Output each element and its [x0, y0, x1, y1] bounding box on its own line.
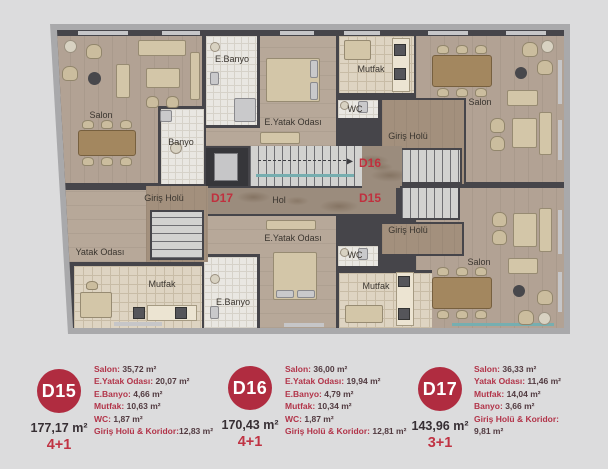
sink — [210, 42, 220, 52]
label-giris-d17: Giriş Holü — [144, 193, 184, 203]
sofa — [138, 40, 186, 56]
unit-badge-d15: D15 — [37, 369, 81, 413]
oven — [398, 308, 410, 320]
armchair — [518, 310, 534, 325]
stair-handrail — [256, 174, 354, 177]
label-mutfak-d15: Mutfak — [362, 281, 389, 291]
chair — [82, 157, 94, 166]
kitchen-counter — [147, 305, 197, 321]
armchair — [490, 118, 505, 133]
kitchen-table — [80, 292, 112, 318]
unit-type-d16: 4+1 — [208, 434, 292, 450]
legend-room-row: Giriş Holü & Koridor: 9,81 m² — [474, 413, 592, 438]
armchair — [492, 230, 507, 245]
kitchen-table — [344, 40, 371, 60]
stair-d15 — [400, 186, 460, 220]
legend-room-row: Banyo: 3,66 m² — [474, 400, 592, 412]
oven — [394, 68, 406, 80]
legend-room-row: E.Yatak Odası: 19,94 m² — [285, 375, 406, 387]
armchair — [522, 42, 538, 57]
pillow — [310, 60, 318, 78]
label-wc-d16: WC — [348, 104, 363, 114]
label-salon-d16: Salon — [468, 97, 491, 107]
unit-area-d15: 177,17 m² — [17, 421, 101, 435]
window — [344, 31, 380, 35]
window — [78, 31, 128, 35]
unit-badge-d16: D16 — [228, 366, 272, 410]
chair — [456, 267, 468, 276]
wardrobe — [266, 220, 316, 230]
coffee-table — [88, 72, 101, 85]
label-giris-d15: Giriş Holü — [388, 225, 428, 235]
window — [558, 210, 562, 254]
window-glass-strip — [452, 323, 554, 326]
chair — [82, 120, 94, 129]
chair — [120, 157, 132, 166]
label-eyatak-d15: E.Yatak Odası — [264, 233, 321, 243]
label-salon-d15: Salon — [467, 257, 490, 267]
dining-table — [432, 277, 492, 309]
legend-rooms-d17: Salon: 36,33 m² Yatak Odası: 11,46 m² Mu… — [474, 363, 592, 437]
unit-badge-d17: D17 — [418, 367, 462, 411]
label-ebanyo-d15: E.Banyo — [216, 297, 250, 307]
shower — [234, 98, 256, 122]
sofa — [539, 112, 552, 155]
label-wc-d15: WC — [348, 250, 363, 260]
stair-d16 — [400, 148, 462, 184]
pillow — [276, 290, 294, 298]
chair — [86, 281, 98, 290]
label-ebanyo-d16: E.Banyo — [215, 54, 249, 64]
cabinet — [116, 64, 130, 98]
legend-room-row: Mutfak: 10,34 m² — [285, 400, 406, 412]
legend-room-row: Yatak Odası: 11,46 m² — [474, 375, 592, 387]
legend-room-row: WC: 1,87 m² — [94, 413, 213, 425]
coffee-table — [512, 118, 537, 148]
armchair — [62, 66, 78, 81]
plan-tag-d15: D15 — [359, 191, 381, 205]
cabinet — [190, 52, 200, 100]
legend-room-row: Mutfak: 10,63 m² — [94, 400, 213, 412]
washer — [160, 110, 172, 122]
chair — [456, 310, 468, 319]
chair — [456, 45, 468, 54]
legend-unit-d15: D15 177,17 m² 4+1 — [17, 369, 101, 453]
window — [428, 31, 468, 35]
armchair — [490, 136, 505, 151]
legend-room-row: E.Banyo: 4,66 m² — [94, 388, 213, 400]
dining-table — [432, 55, 492, 87]
legend-room-row: WC: 1,87 m² — [285, 413, 406, 425]
legend-room-row: Mutfak: 14,04 m² — [474, 388, 592, 400]
unit-area-d16: 170,43 m² — [208, 418, 292, 432]
unit-type-d15: 4+1 — [17, 437, 101, 453]
legend-rooms-d16: Salon: 36,00 m² E.Yatak Odası: 19,94 m² … — [285, 363, 406, 437]
toilet — [210, 72, 219, 85]
chair — [166, 96, 179, 108]
plan-interior: ▶ — [44, 24, 570, 334]
label-eyatak-d16: E.Yatak Odası — [264, 117, 321, 127]
stair-direction-line — [258, 160, 346, 161]
chair — [146, 96, 159, 108]
floor-plan-page: ▶ — [0, 0, 608, 469]
chair — [437, 88, 449, 97]
plan-tag-d16: D16 — [359, 156, 381, 170]
window — [558, 272, 562, 312]
stove — [175, 307, 187, 319]
wardrobe — [260, 132, 300, 144]
tv-cabinet — [507, 90, 538, 106]
pillow — [297, 290, 315, 298]
window — [558, 120, 562, 160]
chair — [437, 310, 449, 319]
window — [506, 31, 546, 35]
coffee-table — [146, 68, 180, 88]
stair-direction-arrow: ▶ — [347, 157, 353, 166]
chair — [101, 120, 113, 129]
legend-room-row: Salon: 35,72 m² — [94, 363, 213, 375]
coffee-table — [515, 67, 527, 79]
chair — [101, 157, 113, 166]
chair — [120, 120, 132, 129]
window — [280, 31, 314, 35]
armchair — [86, 44, 102, 59]
legend-room-row: E.Banyo: 4,79 m² — [285, 388, 406, 400]
chair — [437, 267, 449, 276]
toilet — [210, 306, 219, 319]
chair — [456, 88, 468, 97]
legend-room-row: E.Yatak Odası: 20,07 m² — [94, 375, 213, 387]
tv-cabinet — [508, 258, 538, 274]
armchair — [537, 290, 553, 305]
kitchen-table — [345, 305, 383, 323]
elevator-cab — [214, 153, 238, 181]
label-yatak-d17: Yatak Odası — [76, 247, 125, 257]
legend-room-row: Giriş Holü & Koridor:12,83 m² — [94, 425, 213, 437]
oven — [133, 307, 145, 319]
chair — [475, 310, 487, 319]
label-salon-d17: Salon — [89, 110, 112, 120]
window — [162, 31, 200, 35]
floor-plan: ▶ — [44, 24, 570, 334]
sofa — [539, 208, 552, 252]
side-table — [64, 40, 77, 53]
legend-room-row: Salon: 36,00 m² — [285, 363, 406, 375]
legend-rooms-d15: Salon: 35,72 m² E.Yatak Odası: 20,07 m² … — [94, 363, 213, 437]
dining-table — [78, 130, 136, 156]
legend-unit-d16: D16 170,43 m² 4+1 — [208, 366, 292, 450]
stove — [398, 276, 410, 287]
legend-room-row: Giriş Holü & Koridor: 12,81 m² — [285, 425, 406, 437]
unit-area-d17: 143,96 m² — [398, 419, 482, 433]
side-table — [541, 40, 554, 53]
window — [114, 322, 162, 326]
chair — [475, 45, 487, 54]
label-mutfak-d17: Mutfak — [148, 279, 175, 289]
stove — [394, 44, 406, 56]
window — [558, 60, 562, 104]
sink — [210, 274, 220, 284]
stair-d17 — [150, 210, 204, 260]
chair — [437, 45, 449, 54]
armchair — [537, 60, 553, 75]
side-table — [538, 312, 551, 325]
pillow — [310, 82, 318, 100]
chair — [475, 267, 487, 276]
coffee-table — [513, 285, 525, 297]
stair-common — [250, 146, 362, 186]
armchair — [492, 212, 507, 227]
coffee-table — [513, 213, 537, 247]
plan-tag-d17: D17 — [211, 191, 233, 205]
legend-room-row: Salon: 36,33 m² — [474, 363, 592, 375]
label-hol: Hol — [272, 195, 286, 205]
legend-unit-d17: D17 143,96 m² 3+1 — [398, 367, 482, 451]
label-banyo-d17: Banyo — [168, 137, 194, 147]
chair — [475, 88, 487, 97]
label-giris-d16: Giriş Holü — [388, 131, 428, 141]
unit-type-d17: 3+1 — [398, 435, 482, 451]
label-mutfak-d16: Mutfak — [357, 64, 384, 74]
window — [284, 323, 324, 327]
